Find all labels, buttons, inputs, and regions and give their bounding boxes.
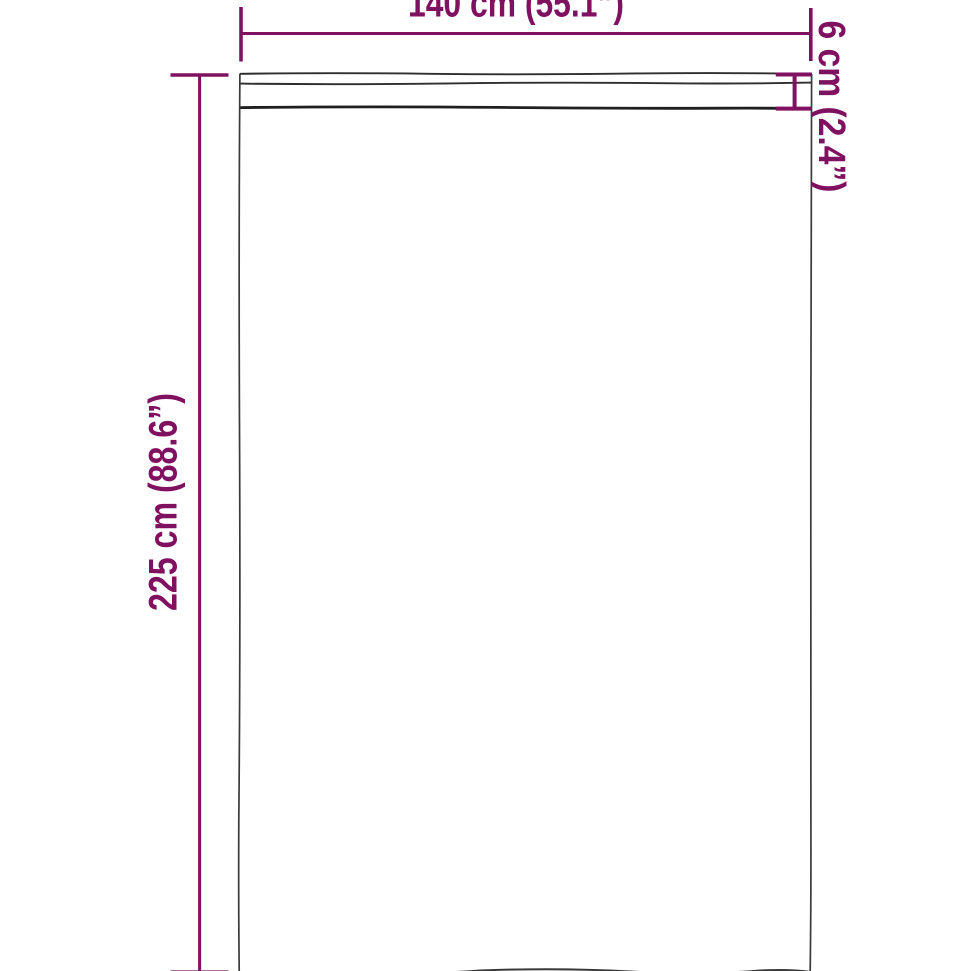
svg-text:140 cm (55.1”): 140 cm (55.1”) [408,0,624,26]
svg-text:225 cm (88.6”): 225 cm (88.6”) [142,393,186,611]
svg-text:6 cm (2.4”): 6 cm (2.4”) [810,21,852,193]
